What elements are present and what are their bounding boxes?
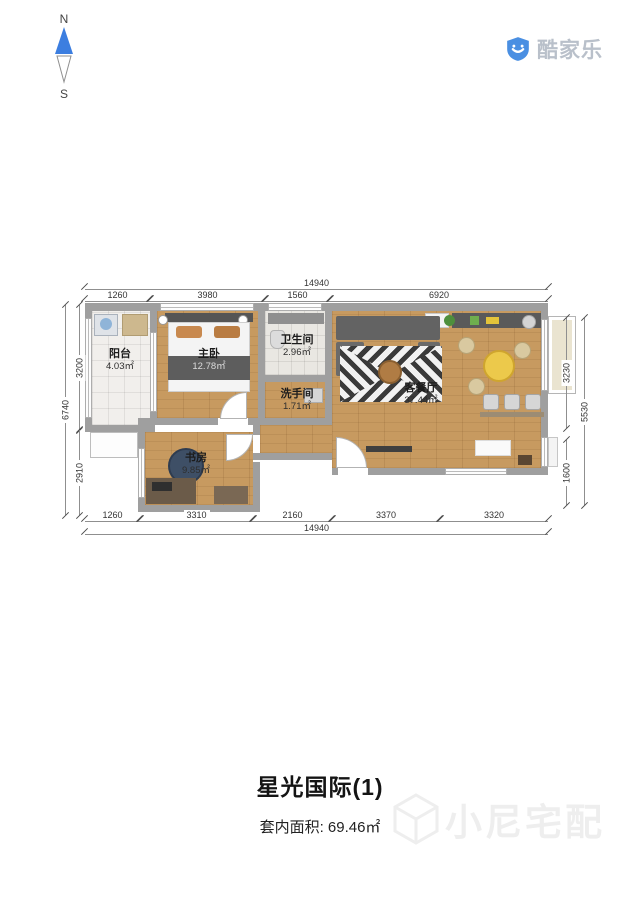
balcony-cabinet <box>122 314 148 336</box>
dim-right-seg: 3230 <box>566 318 567 428</box>
dim-left-seg: 2910 <box>79 430 80 515</box>
bath-counter <box>268 313 324 324</box>
kitchen-item-yellow <box>486 317 499 324</box>
monitor <box>152 482 172 491</box>
dim-top-seg: 1260 <box>85 301 150 302</box>
tv-console <box>366 446 412 452</box>
wall-living-right-bottom <box>541 466 548 475</box>
wall-living-bottom-left <box>332 468 338 475</box>
window-living-right <box>541 319 548 391</box>
wall-bedroom-bottom-left <box>138 418 218 425</box>
dim-bottom-seg: 3310 <box>140 521 253 522</box>
dim-top-seg: 1560 <box>265 301 330 302</box>
kujiale-logo: 酷家乐 <box>505 34 603 64</box>
dim-top-total: 14940 <box>85 289 548 290</box>
dining-chair <box>514 342 531 359</box>
compass-north-label: N <box>48 12 80 26</box>
window-study-left <box>138 448 145 498</box>
dim-left-total: 6740 <box>65 305 66 515</box>
pillow <box>176 326 202 338</box>
study-cabinet <box>214 486 248 504</box>
dim-bottom-seg: 3320 <box>440 521 548 522</box>
dining-table <box>483 350 515 382</box>
desk-chair <box>504 394 520 410</box>
wall-corridor-bottom <box>253 453 332 460</box>
ceiling-light-icon <box>158 315 168 325</box>
long-desk <box>480 412 544 417</box>
dining-chair <box>458 337 475 354</box>
sofa <box>336 316 440 340</box>
compass: N S <box>48 12 80 101</box>
wall-study-right-top <box>253 425 260 435</box>
dim-right-seg: 1600 <box>566 440 567 505</box>
watermark-text: 小尼宅配 <box>445 792 605 846</box>
wall-study-right-bottom <box>253 462 260 512</box>
kitchen-item-green <box>470 316 479 325</box>
shield-smile-icon <box>505 36 531 62</box>
dining-chair <box>468 378 485 395</box>
washing-machine-drum <box>100 318 112 330</box>
pillow <box>214 326 240 338</box>
wall-bedroom-bath <box>258 311 265 425</box>
room-label-living-dining: 客餐厅 37.44㎡ <box>404 382 437 407</box>
wall-bedroom-bottom-right <box>248 418 332 425</box>
wall-bath-washroom <box>265 375 332 382</box>
logo-text: 酷家乐 <box>537 34 603 64</box>
room-label-bathroom: 卫生间 2.96㎡ <box>281 334 314 359</box>
coffee-table <box>378 360 402 384</box>
corridor-floor <box>260 425 332 453</box>
wall-washroom-living <box>325 311 332 425</box>
ac-platform <box>90 432 138 458</box>
window-living-bottom <box>445 468 507 475</box>
window-living-right-lower <box>541 437 548 467</box>
plant-icon <box>444 315 455 326</box>
room-label-balcony: 阳台 4.03㎡ <box>106 348 134 373</box>
compass-south-label: S <box>48 87 80 101</box>
compass-needle-icon <box>51 26 77 84</box>
room-label-washroom: 洗手间 1.71㎡ <box>281 388 314 413</box>
desk-chair <box>483 394 499 410</box>
room-label-study: 书房 9.85㎡ <box>182 452 210 477</box>
dim-top-seg: 3980 <box>150 301 265 302</box>
white-rug <box>475 440 511 456</box>
dim-bottom-seg: 3370 <box>332 521 440 522</box>
window-ledge <box>548 437 558 467</box>
dim-top-seg: 6920 <box>330 301 548 302</box>
floorplan-page: N S 酷家乐 <box>0 0 640 905</box>
dim-bottom-total: 14940 <box>85 534 548 535</box>
room-label-master-bedroom: 主卧 12.78㎡ <box>192 348 225 373</box>
floor-plant <box>518 455 532 465</box>
round-stool <box>522 315 536 329</box>
dim-right-total: 5530 <box>584 318 585 505</box>
window-bedroom-top <box>160 303 254 311</box>
cube-icon <box>393 793 439 845</box>
dim-bottom-seg: 2160 <box>253 521 332 522</box>
dim-bottom-seg: 1260 <box>85 521 140 522</box>
desk-chair <box>525 394 541 410</box>
window-balcony-left <box>85 318 92 418</box>
dim-left-seg: 3200 <box>79 305 80 430</box>
watermark: 小尼宅配 <box>393 792 605 846</box>
window-bathroom-top <box>268 303 322 311</box>
window-balcony-bedroom <box>150 332 157 412</box>
